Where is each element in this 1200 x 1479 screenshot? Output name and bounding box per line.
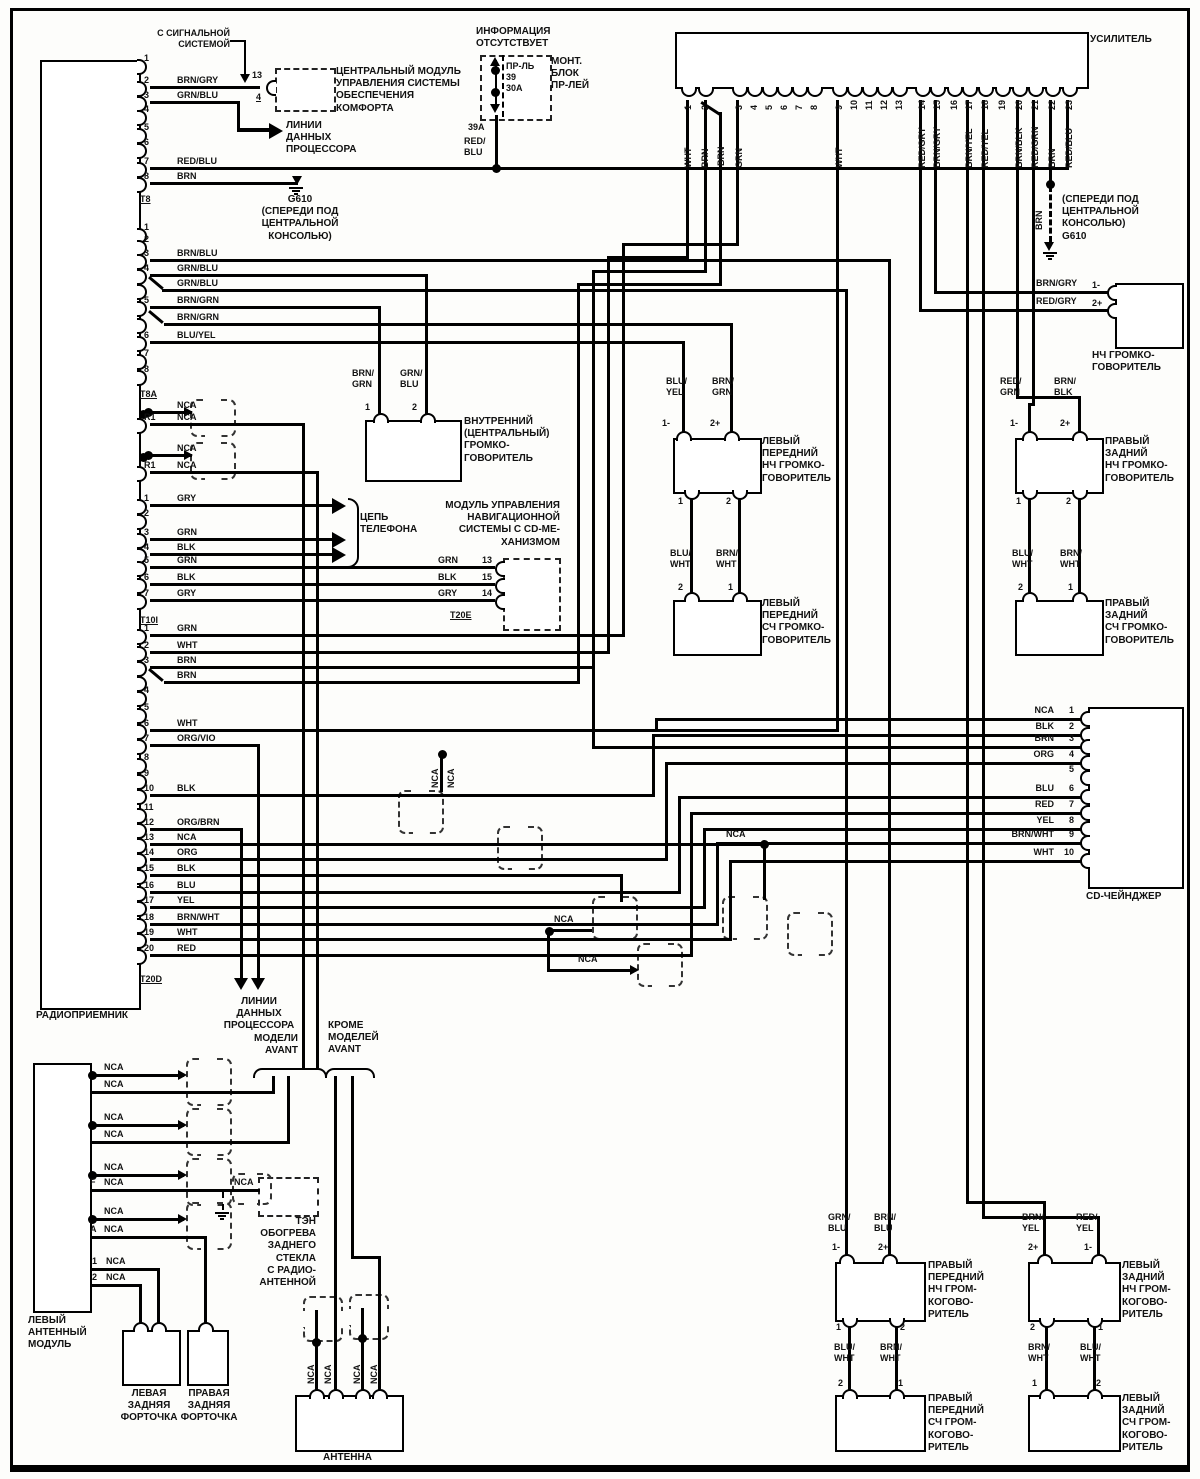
wire	[150, 938, 732, 941]
wire-color-label: BRN/BLK	[1014, 128, 1024, 169]
wire-color-label: NCA	[726, 829, 746, 840]
pin-number: 1-	[1092, 280, 1100, 291]
wire-color-label: BRN/ GRN	[712, 376, 734, 398]
wire	[150, 306, 381, 309]
wire	[690, 492, 693, 602]
wire-color-label: BLK	[177, 783, 196, 794]
front-left-mid-label: ЛЕВЫЙ ПЕРЕДНИЙ СЧ ГРОМКО- ГОВОРИТЕЛЬ	[762, 598, 831, 647]
pin-number: 8	[809, 105, 819, 110]
wire	[440, 754, 443, 792]
pin-arc	[1080, 805, 1090, 821]
wire-color-label: ORG/VIO	[177, 733, 216, 744]
pin-number: 6	[144, 330, 149, 341]
wire	[577, 283, 580, 684]
wire	[592, 270, 707, 273]
wire	[92, 1189, 260, 1192]
wire	[716, 842, 719, 926]
wire	[150, 794, 655, 797]
pin-arc	[355, 1389, 371, 1399]
brace	[253, 1068, 327, 1078]
pin-number: 4	[1058, 749, 1074, 760]
pin-number: 8	[144, 171, 149, 182]
arrow-down-icon	[292, 176, 302, 185]
ground-icon	[289, 187, 303, 189]
wire	[495, 115, 498, 169]
wire-color-label: RED/GRY	[917, 127, 927, 168]
wire-color-label: NCA	[104, 1206, 124, 1217]
right-vent-label: ПРАВАЯ ЗАДНЯЯ ФОРТОЧКА	[178, 1388, 240, 1425]
pin-number: 1	[1032, 1378, 1037, 1389]
pin-number: 20	[1014, 100, 1024, 110]
pin-arc	[1087, 1389, 1103, 1399]
wire	[92, 1074, 184, 1077]
junction-dot	[312, 1338, 321, 1347]
wire	[316, 471, 319, 1068]
wire	[351, 1256, 381, 1259]
pin-number: 7	[144, 733, 149, 744]
pin-number: R1	[144, 412, 156, 423]
pin-arc	[198, 1322, 214, 1332]
pin-number: 20	[144, 943, 154, 954]
wire	[1049, 100, 1052, 184]
wire	[150, 583, 495, 586]
wire-color-label: BRN/YEL	[964, 128, 974, 168]
pin-arc	[684, 592, 700, 602]
pin-number: 2+	[1092, 298, 1102, 309]
wire	[92, 1141, 290, 1144]
wire-color-label: RED/GRY	[1036, 296, 1077, 307]
wire	[150, 744, 260, 747]
wire-color-label: BLU/ WHT	[1080, 1342, 1101, 1364]
pin-number: 4	[144, 685, 149, 696]
pin-number: 3	[144, 90, 149, 101]
pin-arc	[495, 561, 505, 577]
pin-number: 7	[144, 156, 149, 167]
nav-module-label: МОДУЛЬ УПРАВЛЕНИЯ НАВИГАЦИОННОЙ СИСТЕМЫ …	[420, 500, 560, 549]
wire-color-label: BRN/ WHT	[716, 548, 738, 570]
wire-color-label: BLK	[177, 572, 196, 583]
pin-number: 8	[1058, 815, 1074, 826]
pin-number: 3	[734, 105, 744, 110]
pin-number: 2	[1066, 496, 1071, 507]
wire-color-label: RED	[984, 799, 1054, 810]
wire	[150, 843, 768, 846]
pin-number: 1	[678, 496, 683, 507]
wire	[716, 842, 1088, 845]
fuse-box-divider	[502, 55, 504, 117]
wire	[425, 274, 428, 422]
pin-number: 5	[144, 122, 149, 133]
pin-number: 6	[144, 137, 149, 148]
wire-color-label: RED/GRN	[1030, 126, 1040, 168]
wire	[982, 100, 985, 1218]
comfort-module-label: ЦЕНТРАЛЬНЫЙ МОДУЛЬ УПРАВЛЕНИЯ СИСТЕМЫ ОБ…	[336, 66, 461, 115]
wire-color-label: NCA	[177, 460, 197, 471]
wire-color-label: NCA	[984, 705, 1054, 716]
wire-color-label: BRN/WHT	[177, 912, 220, 923]
wire-color-label: BRN/GRY	[1036, 278, 1077, 289]
wire-color-label: BRN/ YEL	[1022, 1212, 1044, 1234]
pin-arc	[420, 413, 436, 423]
wire-color-label: RED/BLU	[1064, 128, 1074, 168]
pin-arc	[1072, 431, 1088, 441]
junction-dot	[438, 750, 447, 759]
rear-left-woofer-box	[1028, 1262, 1121, 1322]
rear-left-mid-box	[1028, 1395, 1121, 1452]
brace	[325, 1068, 375, 1078]
wire-color-label: BLU	[177, 880, 196, 891]
wire	[150, 259, 891, 262]
phone-circuit-label: ЦЕПЬ ТЕЛЕФОНА	[360, 512, 417, 536]
inline-connector	[303, 1296, 343, 1342]
wire-color-label: NCA	[106, 1272, 126, 1283]
wire-color-label: WHT	[177, 927, 198, 938]
pin-arc	[1080, 711, 1090, 727]
pin-number: 15	[476, 572, 492, 583]
wire-color-label: BRN	[1047, 149, 1057, 169]
wire	[92, 1236, 207, 1239]
pin-number: 2	[1096, 1378, 1101, 1389]
pin-arc	[328, 1389, 344, 1399]
pin-number: 6	[1058, 783, 1074, 794]
pin-arc	[372, 1389, 388, 1399]
wire-color-label: BLU/YEL	[177, 330, 216, 341]
pin-number: 11	[144, 802, 154, 813]
wire-color-label: YEL	[984, 815, 1054, 826]
wire	[150, 729, 839, 732]
pin-number: 18	[144, 912, 154, 923]
pin-number: 2	[700, 105, 710, 110]
wire	[665, 762, 1088, 765]
antenna-module-label: ЛЕВЫЙ АНТЕННЫЙ МОДУЛЬ	[28, 1315, 87, 1352]
wire	[703, 828, 706, 909]
wire	[150, 566, 495, 569]
front-left-mid-box	[673, 600, 762, 656]
wire-color-label: WHT	[683, 148, 693, 169]
wire	[351, 1076, 354, 1258]
wire-color-label: BRN	[177, 655, 197, 666]
wiring-diagram-page: С СИГНАЛЬНОЙ СИСТЕМОЙ 13 4 ЦЕНТРАЛЬНЫЙ М…	[0, 0, 1200, 1479]
pin-arc	[839, 1254, 855, 1264]
cd-changer-box	[1088, 707, 1184, 889]
pin-number: R1	[144, 460, 156, 471]
wire	[150, 504, 332, 507]
arrow-right-icon	[630, 965, 639, 975]
pin-number: 3	[1058, 733, 1074, 744]
wire	[92, 1268, 160, 1271]
pin-number: 22	[1047, 100, 1057, 110]
pin-number: 19	[997, 100, 1007, 110]
pin-number: 13	[894, 100, 904, 110]
pin-number: 2	[412, 402, 417, 413]
wire	[763, 843, 766, 900]
pin-number: 12	[879, 100, 889, 110]
pin-number: 4	[144, 263, 149, 274]
wire	[139, 1284, 142, 1327]
wire-color-label: GRY	[177, 588, 196, 599]
arrow-right-icon	[178, 1070, 187, 1080]
center-speaker-box	[365, 420, 462, 482]
pin-number: 2+	[878, 1242, 888, 1253]
wire-color-label: BRN/ WHT	[1028, 1342, 1050, 1364]
pin-number: 4	[749, 105, 759, 110]
wire-color-label: GRN/BLU	[177, 278, 218, 289]
nav-module-box	[503, 558, 561, 631]
pin-number: 2+	[1060, 418, 1070, 429]
pin-number: 7	[1058, 799, 1074, 810]
pin-arc	[266, 80, 276, 96]
connector-label: T20D	[140, 974, 162, 985]
wire-color-label: GRN	[734, 148, 744, 168]
wire-color-label: BRN/GRN	[177, 295, 219, 306]
wire-color-label: BRN	[716, 147, 726, 167]
pin-number: 2	[144, 640, 149, 651]
wire	[547, 969, 635, 972]
front-right-mid-label: ПРАВЫЙ ПЕРЕДНИЙ СЧ ГРОМ- КОГОВО- РИТЕЛЬ	[928, 1393, 984, 1454]
pin-number: 1	[92, 1256, 97, 1267]
pin-arc	[724, 431, 740, 441]
pin-arc	[732, 592, 748, 602]
pin-number: 14	[917, 100, 927, 110]
pin-number: 13	[144, 832, 154, 843]
pin-number: 6	[144, 718, 149, 729]
ground-label: (СПЕРЕДИ ПОД ЦЕНТРАЛЬНОЙ КОНСОЛЬЮ) G610	[1062, 194, 1139, 243]
wire-color-label: NCA	[352, 1365, 362, 1385]
pin-arc	[151, 1322, 167, 1332]
wire	[150, 923, 719, 926]
wire-color-label: BLK	[438, 572, 457, 583]
wire	[272, 1076, 275, 1094]
inline-connector	[186, 1158, 232, 1206]
rear-left-mid-label: ЛЕВЫЙ ЗАДНИЙ СЧ ГРОМ- КОГОВО- РИТЕЛЬ	[1122, 1393, 1170, 1454]
pin-number: 1-	[662, 418, 670, 429]
wire	[704, 100, 707, 273]
wire	[157, 1268, 160, 1327]
front-left-woofer-box	[673, 438, 762, 494]
signal-system-label: С СИГНАЛЬНОЙ СИСТЕМОЙ	[124, 28, 230, 50]
pin-arc	[1080, 755, 1090, 771]
pin-number: 19	[144, 927, 154, 938]
pin-arc	[1080, 789, 1090, 805]
wire-color-label: NCA	[306, 1365, 316, 1385]
amplifier-label: УСИЛИТЕЛЬ	[1090, 34, 1152, 46]
wire-color-label: BRN	[984, 733, 1054, 744]
pin-number: 23	[1064, 100, 1074, 110]
pin-number: 7	[144, 588, 149, 599]
wire	[162, 289, 848, 292]
pin-number: 2	[900, 1322, 905, 1333]
wire-color-label: BLU/ WHT	[834, 1342, 855, 1364]
wire-color-label: RED/ YEL	[1076, 1212, 1098, 1234]
wire	[244, 40, 246, 76]
wire-color-label: GRY	[438, 588, 457, 599]
pin-number: 15	[144, 863, 154, 874]
wire	[150, 423, 305, 426]
wire	[150, 651, 610, 654]
wire-color-label: RED/ GRN	[1000, 376, 1022, 398]
wire	[620, 874, 623, 902]
wire-color-label: ORG/BRN	[177, 817, 220, 828]
pin-number: 6	[144, 572, 149, 583]
wire	[592, 270, 595, 749]
pin-number: 7	[144, 348, 149, 359]
fuse-rating-label: 39А	[468, 122, 485, 133]
wire-color-label: GRN	[177, 623, 197, 634]
wire-color-label: GRN/BLU	[177, 263, 218, 274]
wire	[204, 1236, 207, 1327]
pin-number: 2	[1030, 1322, 1035, 1333]
pin-number: 1	[1016, 496, 1021, 507]
inline-connector	[186, 1202, 232, 1250]
pin-number: 1-	[1010, 418, 1018, 429]
pin-number: 9	[144, 768, 149, 779]
wire-color-label: GRN	[177, 527, 197, 538]
pin-number: 1	[683, 105, 693, 110]
woofer-right-box	[1115, 283, 1184, 349]
wire-color-label: ORG	[984, 749, 1054, 760]
wire	[934, 291, 1117, 294]
wire-color-label: GRN	[177, 555, 197, 566]
pin-arc	[133, 1322, 149, 1332]
wire	[736, 100, 739, 246]
pin-arc	[495, 594, 505, 610]
rear-left-woofer-label: ЛЕВЫЙ ЗАДНИЙ НЧ ГРОМ- КОГОВО- РИТЕЛЬ	[1122, 1260, 1171, 1321]
cd-changer-label: CD-ЧЕЙНДЖЕР	[1086, 891, 1161, 903]
wire-color-label: GRN/BLU	[177, 90, 218, 101]
wire	[845, 289, 848, 1258]
wire-color-label: RED/ BLU	[464, 136, 486, 158]
junction-dot	[760, 840, 769, 849]
pin-number: 5	[1058, 764, 1074, 775]
pin-arc	[495, 578, 505, 594]
wire	[888, 259, 891, 1258]
data-lines-label: ЛИНИИ ДАННЫХ ПРОЦЕССОРА	[286, 120, 356, 157]
radio-box	[40, 60, 141, 1010]
connector-label: 4	[256, 92, 261, 103]
wire-color-label: NCA	[104, 1224, 124, 1235]
wire-color-label: YEL	[177, 895, 195, 906]
ground-icon	[215, 1212, 229, 1214]
wire	[966, 100, 969, 1203]
pin-arc	[882, 1254, 898, 1264]
pin-arc	[889, 1389, 905, 1399]
left-vent-label: ЛЕВАЯ ЗАДНЯЯ ФОРТОЧКА	[112, 1388, 186, 1425]
antenna-module-box	[33, 1063, 92, 1313]
wire	[607, 256, 689, 259]
wire	[150, 538, 332, 541]
pin-number: 2	[838, 1378, 843, 1389]
junction-dot	[491, 66, 500, 75]
antenna-label: АНТЕННА	[295, 1452, 400, 1464]
wire-color-label: NCA	[104, 1129, 124, 1140]
arrow-right-icon	[178, 1214, 187, 1224]
wire	[547, 931, 550, 971]
rear-right-mid-label: ПРАВЫЙ ЗАДНИЙ СЧ ГРОМКО- ГОВОРИТЕЛЬ	[1105, 598, 1174, 647]
arrow-down-icon	[240, 74, 250, 83]
wire	[150, 182, 298, 185]
pin-number: 2+	[710, 418, 720, 429]
pin-number: 3	[144, 527, 149, 538]
pin-number: 1-	[832, 1242, 840, 1253]
wire-color-label: NCA	[104, 1079, 124, 1090]
wire	[287, 1076, 290, 1144]
wire	[607, 256, 610, 654]
pin-number: 2	[678, 582, 683, 593]
wire	[1028, 492, 1031, 602]
pin-number: 1	[1058, 705, 1074, 716]
wire-color-label: BRN/ WHT	[880, 1342, 902, 1364]
pin-number: 10	[144, 783, 154, 794]
center-speaker-label: ВНУТРЕННИЙ (ЦЕНТРАЛЬНЫЙ) ГРОМКО- ГОВОРИТ…	[464, 416, 550, 465]
wire-color-label: WHT	[834, 148, 844, 169]
wire-dashed	[1049, 186, 1052, 242]
wire-color-label: NCA	[106, 1256, 126, 1267]
wire-color-label: NCA	[323, 1365, 333, 1385]
wire-color-label: NCA	[369, 1365, 379, 1385]
wire	[729, 860, 732, 941]
ground-label: G610 (СПЕРЕДИ ПОД ЦЕНТРАЛЬНОЙ КОНСОЛЬЮ)	[240, 194, 360, 243]
wire	[150, 666, 595, 669]
fuse-block-label: МОНТ. БЛОК ПР-ЛЕЙ	[551, 56, 589, 93]
pin-number: F	[90, 1177, 96, 1188]
connector-label: T8A	[140, 389, 157, 400]
wire-color-label: BRN	[177, 171, 197, 182]
wire	[622, 243, 625, 637]
wire-color-label: BRN/ BLU	[874, 1212, 896, 1234]
pin-number: 5	[144, 555, 149, 566]
wire-color-label: WHT	[177, 718, 198, 729]
junction-dot	[88, 1121, 97, 1130]
pin-number: 5	[144, 702, 149, 713]
pin-number: 4	[144, 104, 149, 115]
arrow-down-icon	[490, 104, 500, 113]
wire	[686, 100, 689, 259]
pin-number: 5	[764, 105, 774, 110]
arrow-right-icon	[332, 532, 346, 548]
wire-color-label: BRN/ BLK	[1054, 376, 1076, 398]
pin-number: 2	[144, 508, 149, 519]
pin-arc	[1080, 835, 1090, 851]
pin-number: A	[90, 1224, 97, 1235]
arrow-right-icon	[178, 1170, 187, 1180]
wire-color-label: BLK	[177, 863, 196, 874]
wire	[150, 954, 693, 957]
front-right-mid-box	[835, 1395, 926, 1452]
front-right-woofer-box	[835, 1262, 926, 1322]
wire	[150, 828, 243, 831]
front-right-woofer-label: ПРАВЫЙ ПЕРЕДНИЙ НЧ ГРОМ- КОГОВО- РИТЕЛЬ	[928, 1260, 984, 1321]
wire-color-label: NCA	[446, 769, 456, 789]
pin-number: 3	[144, 248, 149, 259]
pin-number: 2	[144, 75, 149, 86]
wire-color-label: NCA	[177, 400, 197, 411]
wire	[719, 112, 722, 286]
wire-color-label: BRN/GRN	[177, 312, 219, 323]
pin-number: 15	[932, 100, 942, 110]
wire	[577, 283, 722, 286]
pin-number: 1	[144, 493, 149, 504]
wire-color-label: NCA	[104, 1062, 124, 1073]
no-info-label: ИНФОРМАЦИЯ ОТСУТСТВУЕТ	[476, 26, 551, 50]
pin-arc	[1022, 431, 1038, 441]
wire-color-label: BRN	[177, 670, 197, 681]
wire	[652, 734, 655, 797]
wire	[92, 1218, 184, 1221]
pin-number: 1-	[1084, 1242, 1092, 1253]
wire-color-label: GRN/ BLU	[400, 368, 423, 390]
arrow-down-icon	[234, 978, 248, 990]
wire-color-label: NCA	[554, 914, 574, 925]
